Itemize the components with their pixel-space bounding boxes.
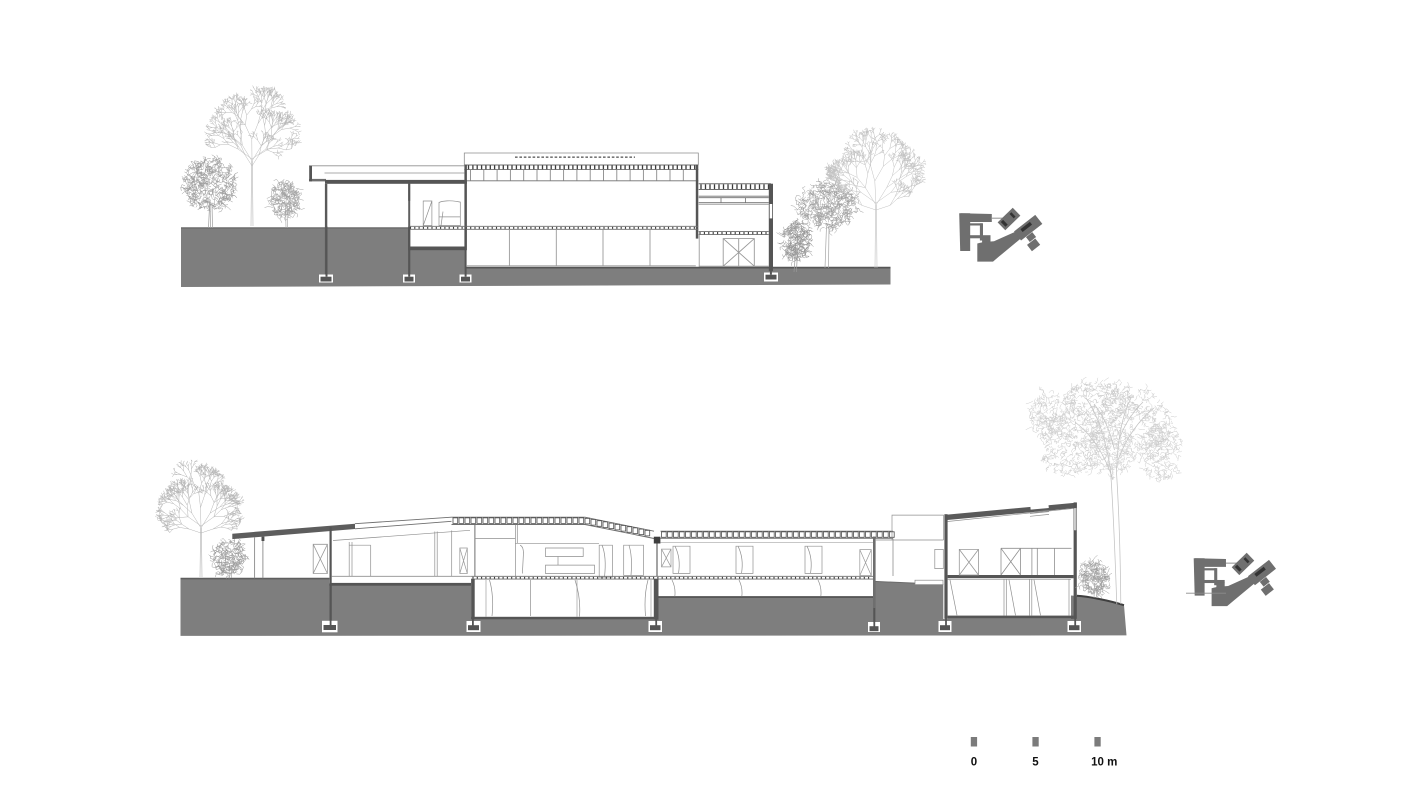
svg-text:0: 0 bbox=[971, 757, 977, 769]
svg-text:10 m: 10 m bbox=[1091, 757, 1117, 769]
svg-text:5: 5 bbox=[1032, 757, 1039, 769]
